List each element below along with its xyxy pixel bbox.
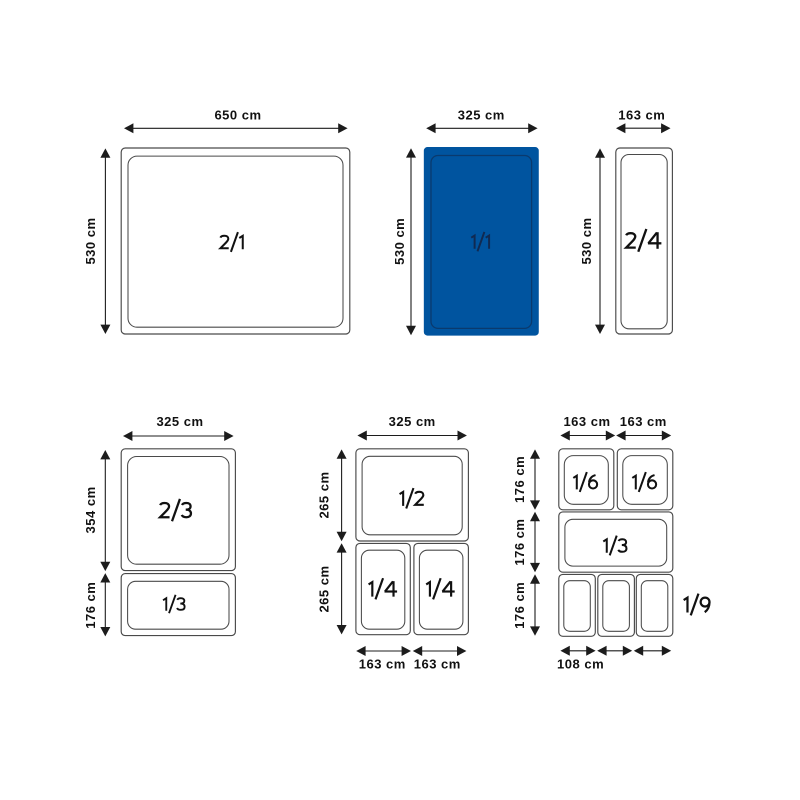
svg-text:530 cm: 530 cm — [392, 218, 407, 265]
svg-text:265 cm: 265 cm — [317, 471, 332, 518]
svg-text:176 cm: 176 cm — [512, 456, 527, 503]
svg-text:325 cm: 325 cm — [389, 414, 436, 429]
svg-text:163 cm: 163 cm — [618, 108, 665, 123]
svg-text:530 cm: 530 cm — [83, 217, 98, 264]
svg-text:176 cm: 176 cm — [83, 582, 98, 629]
svg-text:354 cm: 354 cm — [83, 486, 98, 533]
svg-text:530 cm: 530 cm — [579, 217, 594, 264]
svg-text:108 cm: 108 cm — [557, 657, 604, 672]
svg-text:163 cm: 163 cm — [414, 657, 461, 672]
svg-text:265 cm: 265 cm — [317, 565, 332, 612]
svg-text:325 cm: 325 cm — [156, 414, 203, 429]
svg-text:176 cm: 176 cm — [512, 582, 527, 629]
svg-text:163 cm: 163 cm — [359, 657, 406, 672]
svg-text:325 cm: 325 cm — [458, 108, 505, 123]
svg-text:163 cm: 163 cm — [620, 414, 667, 429]
svg-text:650 cm: 650 cm — [214, 108, 261, 123]
svg-text:176 cm: 176 cm — [512, 519, 527, 566]
svg-text:163 cm: 163 cm — [563, 414, 610, 429]
